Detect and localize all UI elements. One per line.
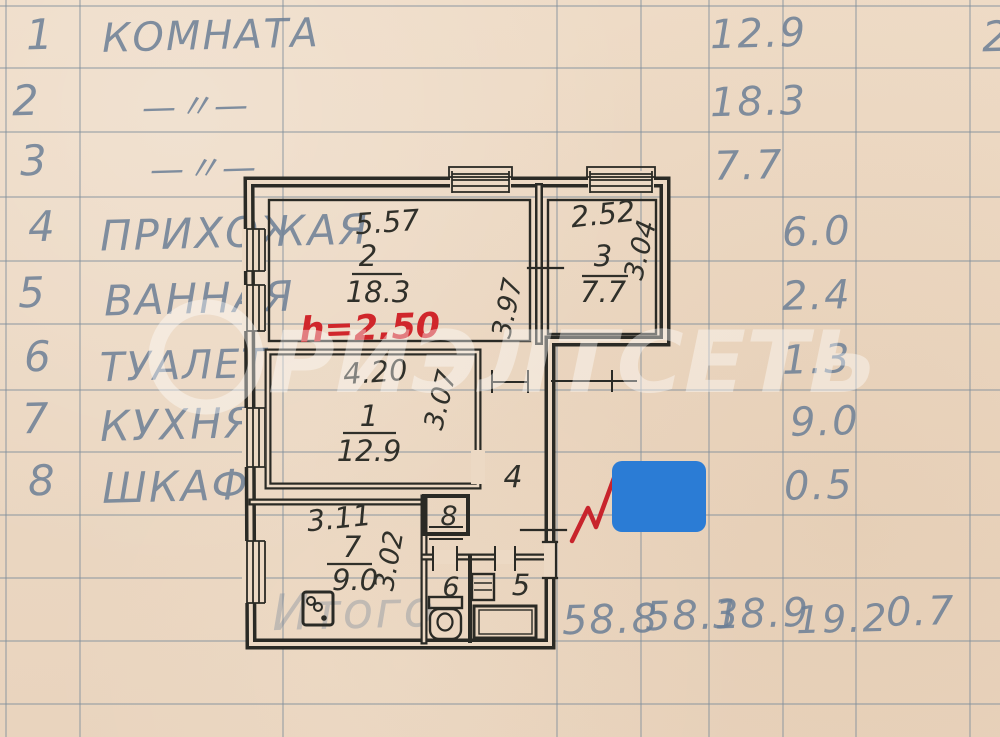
watermark-text: РИЭЛТСЕТЬ [268,313,878,413]
watermark-logo-icon [156,307,256,407]
overlay: РИЭЛТСЕТЬ [0,0,1000,737]
check-mark [572,478,614,541]
scanned-page: 1 КОМНАТА 12.9 2 —〃— 18.3 3 —〃— 7.7 4 ПР… [0,0,1000,737]
redaction-box [612,461,706,532]
watermark: РИЭЛТСЕТЬ [156,307,878,413]
